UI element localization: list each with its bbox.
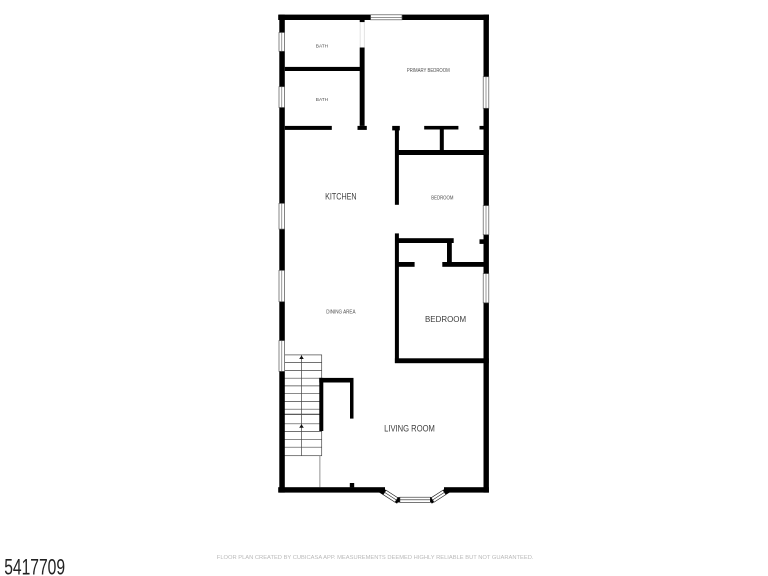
svg-text:PRIMARY BEDROOM: PRIMARY BEDROOM	[407, 68, 450, 74]
svg-text:BATH: BATH	[316, 97, 329, 103]
svg-text:BATH: BATH	[316, 43, 329, 49]
svg-text:LIVING ROOM: LIVING ROOM	[384, 424, 435, 434]
svg-text:DINING AREA: DINING AREA	[326, 310, 356, 316]
svg-text:BEDROOM: BEDROOM	[425, 314, 466, 324]
svg-text:5417709: 5417709	[4, 554, 65, 576]
svg-text:BEDROOM: BEDROOM	[431, 196, 453, 202]
svg-text:FLOOR PLAN CREATED BY CUBICASA: FLOOR PLAN CREATED BY CUBICASA APP. MEAS…	[217, 555, 534, 561]
svg-text:KITCHEN: KITCHEN	[325, 191, 357, 201]
